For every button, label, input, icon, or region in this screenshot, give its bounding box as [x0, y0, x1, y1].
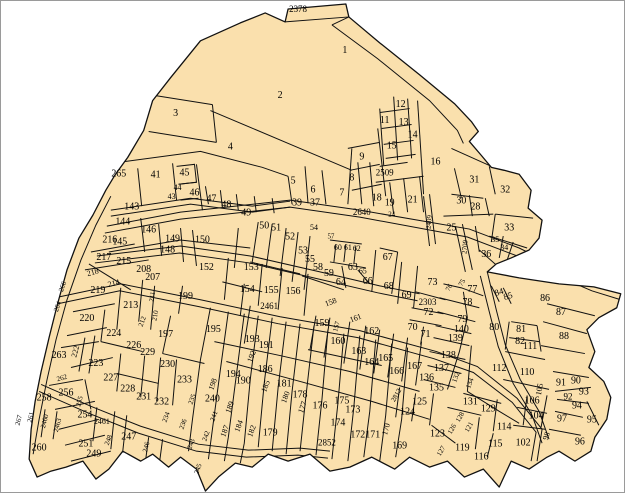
parcel-label-33: 33: [504, 222, 514, 233]
parcel-label-174: 174: [330, 418, 345, 429]
parcel-label-18: 18: [372, 192, 382, 203]
parcel-label-71: 71: [421, 329, 431, 340]
parcel-label-193: 193: [245, 334, 260, 345]
parcel-label-2509: 2509: [376, 167, 394, 177]
parcel-label-58: 58: [313, 262, 323, 273]
parcel-label-153: 153: [244, 262, 259, 273]
parcel-label-260: 260: [32, 442, 47, 453]
parcel-label-12: 12: [396, 99, 406, 110]
parcel-label-135: 135: [429, 383, 444, 394]
parcel-label-60: 60: [334, 243, 342, 252]
parcel-label-119: 119: [455, 442, 470, 453]
parcel-label-72: 72: [424, 307, 434, 318]
parcel-label-9: 9: [359, 152, 364, 163]
parcel-label-37: 37: [310, 197, 320, 208]
parcel-label-30: 30: [456, 195, 466, 206]
parcel-label-148: 148: [160, 244, 175, 255]
parcel-label-232: 232: [154, 397, 169, 408]
parcel-label-61: 61: [344, 243, 352, 252]
map-container: 2378123456789111213141516181921242528303…: [0, 0, 625, 493]
parcel-label-95: 95: [587, 415, 597, 426]
parcel-label-34: 34: [500, 243, 508, 252]
parcel-label-131: 131: [463, 397, 478, 408]
parcel-label-78: 78: [462, 297, 472, 308]
parcel-label-49: 49: [241, 207, 251, 218]
parcel-label-28: 28: [470, 201, 480, 212]
parcel-label-86: 86: [540, 293, 550, 304]
parcel-label-11: 11: [380, 115, 390, 126]
parcel-label-32: 32: [500, 185, 510, 196]
parcel-label-54: 54: [310, 223, 318, 232]
parcel-label-140: 140: [454, 324, 469, 335]
parcel-label-63: 63: [348, 262, 358, 273]
parcel-label-220: 220: [79, 313, 94, 324]
parcel-label-229: 229: [140, 347, 155, 358]
parcel-label-65: 65: [359, 267, 367, 276]
parcel-label-77: 77: [467, 284, 477, 295]
parcel-label-73: 73: [428, 277, 438, 288]
parcel-label-224: 224: [106, 328, 121, 339]
parcel-label-247: 247: [121, 432, 136, 443]
parcel-label-13: 13: [399, 117, 409, 128]
parcel-label-111: 111: [523, 341, 537, 352]
parcel-label-2852: 2852: [318, 437, 336, 447]
parcel-label-1: 1: [342, 45, 347, 56]
parcel-label-186: 186: [258, 364, 273, 375]
parcel-label-256: 256: [59, 388, 74, 399]
parcel-label-48: 48: [221, 199, 231, 210]
parcel-label-36: 36: [481, 249, 491, 260]
parcel-label-2409: 2409: [425, 214, 434, 229]
parcel-label-59: 59: [324, 268, 334, 279]
parcel-label-156: 156: [286, 286, 301, 297]
parcel-label-87: 87: [556, 307, 566, 318]
parcel-label-123: 123: [430, 429, 445, 440]
parcel-label-176: 176: [313, 401, 328, 412]
parcel-label-45: 45: [180, 168, 190, 179]
parcel-label-265: 265: [111, 169, 126, 180]
parcel-label-7: 7: [339, 187, 344, 198]
parcel-label-3: 3: [173, 108, 178, 119]
parcel-label-162: 162: [364, 326, 379, 337]
parcel-label-2461: 2461: [94, 417, 110, 426]
parcel-label-50: 50: [259, 220, 269, 231]
parcel-label-2378: 2378: [289, 4, 307, 14]
parcel-label-2303: 2303: [419, 297, 437, 307]
parcel-label-217: 217: [96, 252, 111, 263]
parcel-label-159: 159: [315, 318, 330, 329]
parcel-label-124: 124: [400, 407, 415, 418]
parcel-label-172: 172: [350, 430, 365, 441]
parcel-label-227: 227: [103, 373, 118, 384]
parcel-label-179: 179: [263, 428, 278, 439]
parcel-label-64: 64: [336, 277, 346, 288]
parcel-label-106: 106: [525, 396, 540, 407]
parcel-label-88: 88: [559, 331, 569, 342]
parcel-label-258: 258: [37, 393, 52, 404]
parcel-label-169: 169: [392, 440, 407, 451]
parcel-label-263: 263: [52, 350, 67, 361]
parcel-label-216: 216: [102, 234, 117, 245]
parcel-label-267: 267: [14, 414, 25, 427]
parcel-label-146: 146: [141, 224, 156, 235]
parcel-label-31: 31: [469, 175, 479, 186]
parcel-label-102: 102: [516, 437, 531, 448]
parcel-label-178: 178: [293, 390, 308, 401]
parcel-label-129: 129: [481, 404, 496, 415]
parcel-label-94: 94: [572, 401, 582, 412]
parcel-label-171: 171: [365, 430, 380, 441]
parcel-label-90: 90: [571, 376, 581, 387]
parcel-label-14: 14: [408, 130, 418, 141]
parcel-label-97: 97: [557, 414, 567, 425]
parcel-label-223: 223: [88, 358, 103, 369]
parcel-label-138: 138: [441, 350, 456, 361]
parcel-label-143: 143: [124, 201, 139, 212]
parcel-label-39: 39: [292, 197, 302, 208]
parcel-label-191: 191: [259, 340, 274, 351]
parcel-label-8: 8: [349, 173, 354, 184]
parcel-label-70: 70: [408, 322, 418, 333]
parcel-label-125: 125: [412, 397, 427, 408]
parcel-label-137: 137: [434, 363, 449, 374]
parcel-label-136: 136: [419, 373, 434, 384]
parcel-label-167: 167: [407, 361, 422, 372]
parcel-label-144: 144: [115, 216, 130, 227]
parcel-label-166: 166: [389, 366, 404, 377]
parcel-label-15: 15: [387, 141, 397, 152]
parcel-label-154: 154: [240, 284, 255, 295]
parcel-label-2: 2: [278, 90, 283, 101]
parcel-label-68: 68: [384, 281, 394, 292]
parcel-label-150: 150: [195, 234, 210, 245]
parcel-label-69: 69: [402, 290, 412, 301]
parcel-label-96: 96: [575, 436, 585, 447]
parcel-label-240: 240: [205, 394, 220, 405]
parcel-label-160: 160: [330, 336, 345, 347]
parcel-label-62: 62: [353, 244, 361, 253]
parcel-label-46: 46: [190, 187, 200, 198]
parcel-label-226: 226: [126, 340, 141, 351]
parcel-label-47: 47: [206, 193, 216, 204]
parcel-label-80: 80: [489, 322, 499, 333]
parcel-label-67: 67: [383, 252, 393, 263]
parcel-label-230: 230: [160, 359, 175, 370]
parcel-label-175: 175: [334, 396, 349, 407]
parcel-label-2709: 2709: [460, 239, 469, 254]
parcel-label-6: 6: [311, 185, 316, 196]
parcel-label-110: 110: [520, 367, 535, 378]
parcel-label-91: 91: [556, 378, 566, 389]
parcel-label-152: 152: [199, 262, 214, 273]
parcel-label-66: 66: [363, 276, 373, 287]
parcel-label-104: 104: [529, 411, 544, 422]
parcel-label-19: 19: [385, 197, 395, 208]
parcel-label-16: 16: [431, 157, 441, 168]
parcel-label-24: 24: [388, 211, 395, 219]
parcel-label-44: 44: [174, 183, 182, 192]
parcel-label-115: 115: [488, 438, 503, 449]
parcel-label-231: 231: [136, 392, 151, 403]
parcel-label-215: 215: [116, 256, 131, 267]
parcel-label-181: 181: [277, 379, 292, 390]
parcel-label-199: 199: [178, 291, 193, 302]
parcel-label-57: 57: [327, 233, 334, 241]
cadastral-map-svg: 2378123456789111213141516181921242528303…: [1, 1, 624, 492]
parcel-label-251: 251: [78, 438, 93, 449]
parcel-label-21: 21: [408, 194, 418, 205]
parcel-label-4: 4: [228, 142, 233, 153]
parcel-label-51: 51: [271, 222, 281, 233]
parcel-label-233: 233: [177, 375, 192, 386]
parcel-label-228: 228: [120, 384, 135, 395]
parcel-label-249: 249: [86, 448, 101, 459]
parcel-label-112: 112: [492, 363, 507, 374]
parcel-label-116: 116: [474, 451, 489, 462]
parcel-label-163: 163: [351, 346, 366, 357]
parcel-label-114: 114: [497, 422, 512, 433]
parcel-label-194: 194: [226, 369, 241, 380]
parcel-label-208: 208: [136, 264, 151, 275]
parcel-label-93: 93: [579, 387, 589, 398]
parcel-label-81: 81: [516, 324, 526, 335]
parcel-label-2640: 2640: [353, 207, 371, 217]
parcel-label-2461: 2461: [260, 301, 278, 311]
parcel-label-5: 5: [291, 176, 296, 187]
parcel-label-254: 254: [77, 410, 92, 421]
parcel-label-52: 52: [285, 231, 295, 242]
parcel-label-213: 213: [123, 300, 138, 311]
parcel-label-41: 41: [151, 170, 161, 181]
parcel-label-149: 149: [165, 233, 180, 244]
parcel-label-164: 164: [364, 357, 379, 368]
parcel-label-155: 155: [264, 285, 279, 296]
parcel-label-43: 43: [168, 192, 176, 201]
parcel-label-219: 219: [90, 285, 105, 296]
parcel-label-197: 197: [158, 329, 173, 340]
parcel-label-35: 35: [491, 235, 499, 244]
parcel-label-165: 165: [378, 353, 393, 364]
parcel-label-195: 195: [206, 324, 221, 335]
parcel-label-25: 25: [446, 222, 456, 233]
